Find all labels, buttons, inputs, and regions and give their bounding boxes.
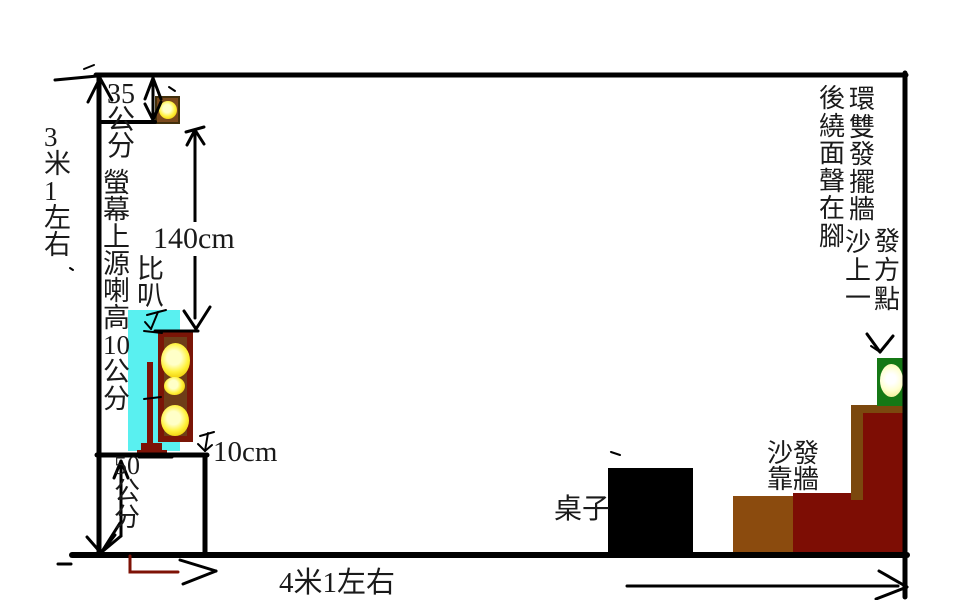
gap-10cm-label: 10cm xyxy=(213,436,277,469)
table-tick xyxy=(611,452,620,455)
sofa-back xyxy=(862,412,905,553)
room-width-arrow xyxy=(627,571,907,599)
screen-stand-foot xyxy=(137,450,167,457)
speaker-driver-top xyxy=(161,343,190,378)
rear-surround-note-right-column: 環 雙 發 擺 牆 xyxy=(849,86,875,224)
platform-edge-mini-arrow xyxy=(198,432,214,451)
speaker-driver-bottom xyxy=(161,405,189,436)
platform-height-label: 50 公 分 xyxy=(114,453,140,531)
room-width-label: 4米1左右 xyxy=(279,559,395,600)
sofa-armrest xyxy=(733,496,793,553)
rear-speaker-driver xyxy=(880,364,903,397)
dot-mark xyxy=(70,268,73,270)
ceiling-speaker-driver xyxy=(159,101,177,119)
rear-position-note-right-column: 發 方 點 xyxy=(874,227,900,314)
speaker-height-140cm-label: 140cm xyxy=(151,222,237,256)
ceiling-gap-label: 35 公 分 xyxy=(107,82,135,160)
corner-origin-arrow xyxy=(130,556,216,584)
table-block xyxy=(608,468,693,554)
screen-note-side-column: 比 叭 xyxy=(137,256,164,310)
rear-position-note-left-column: 沙 上 一 xyxy=(845,229,871,313)
room-height-label: 3 米 1 左 右 xyxy=(44,124,71,259)
rear-surround-note-left-column: 後 繞 面 聲 在 腳 xyxy=(819,85,845,250)
screen-stand-post xyxy=(147,362,153,449)
speaker-driver-mid xyxy=(164,377,185,395)
table-label: 桌子 xyxy=(554,487,610,527)
sofa-label: 沙發 靠牆 xyxy=(767,441,819,493)
ceiling-overhang-line xyxy=(55,75,108,80)
paint-drawing-canvas: 3 米 1 左 右 35 公 分 螢 幕 上 源 喇 高 10 公 分 比 叭 … xyxy=(0,0,960,600)
stray-tick xyxy=(84,65,94,69)
speaker-tick xyxy=(169,87,175,91)
sofa-back-left-edge xyxy=(851,412,863,500)
rear-speaker-pointer-arrow xyxy=(867,334,893,352)
screen-note-main-column: 螢 幕 上 源 喇 高 10 公 分 xyxy=(103,170,130,413)
